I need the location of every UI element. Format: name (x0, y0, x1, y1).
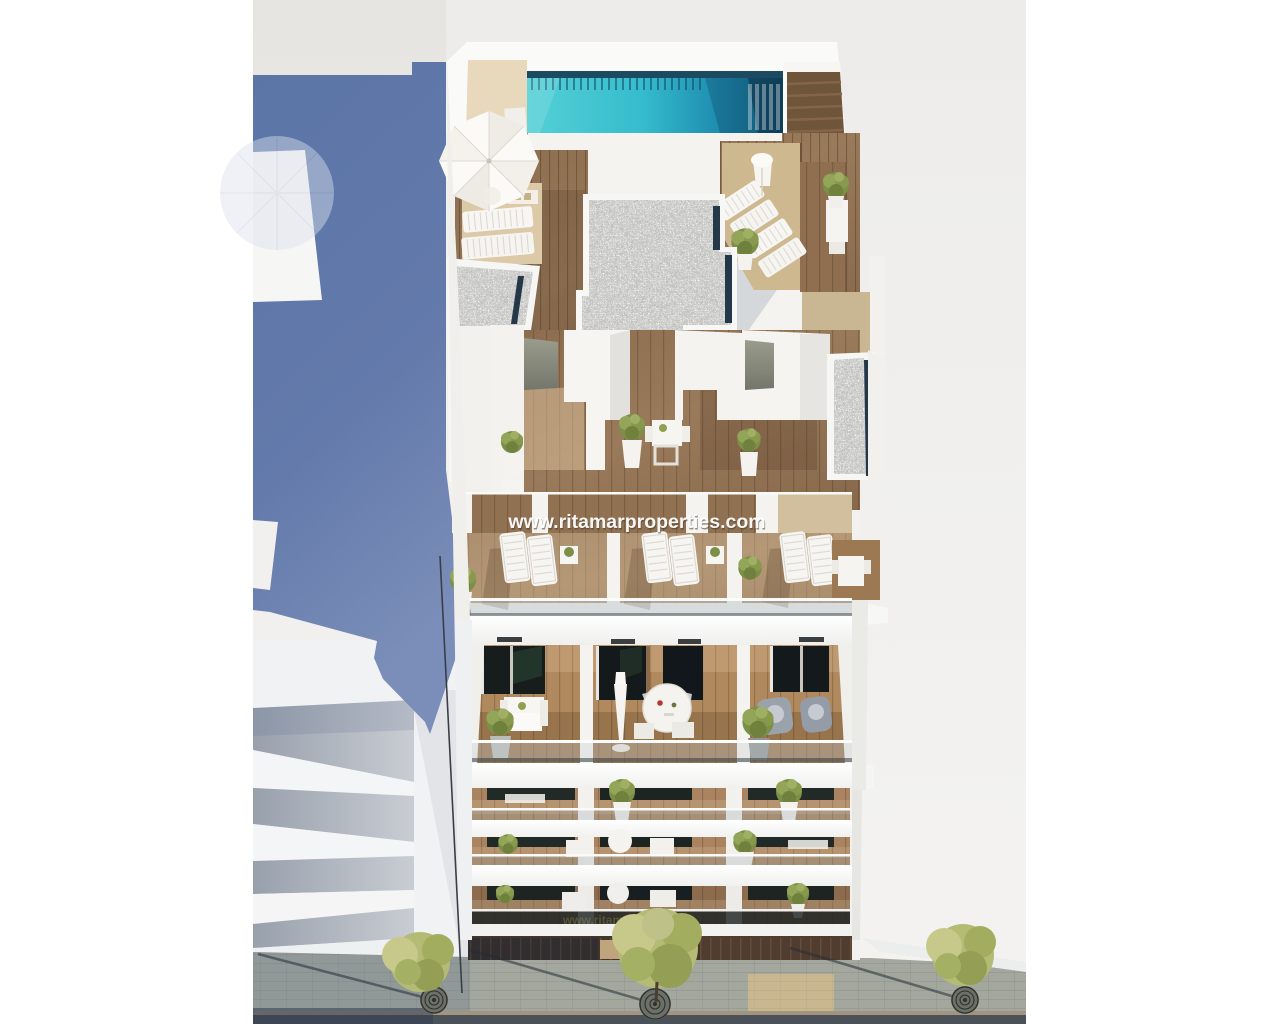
svg-text:www.ritamarproperties.com: www.ritamarproperties.com (507, 511, 765, 533)
